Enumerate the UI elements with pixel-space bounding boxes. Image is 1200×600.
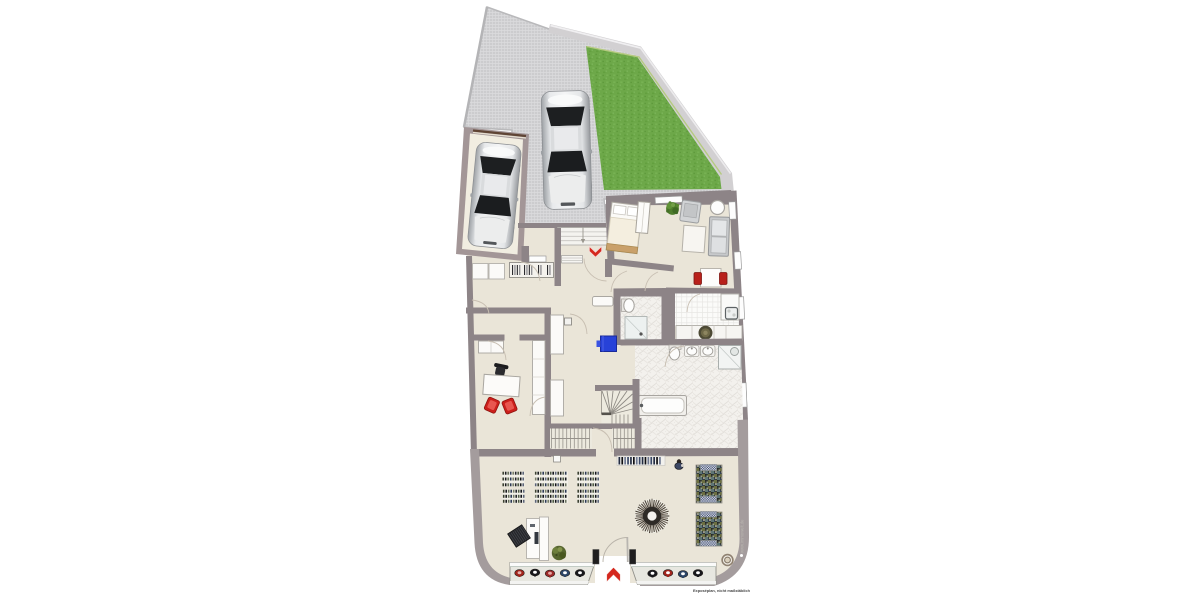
svg-text:www.immowelt.de: www.immowelt.de xyxy=(740,519,745,553)
svg-text:Exposéplan, nicht maßstäblich: Exposéplan, nicht maßstäblich xyxy=(693,588,751,593)
